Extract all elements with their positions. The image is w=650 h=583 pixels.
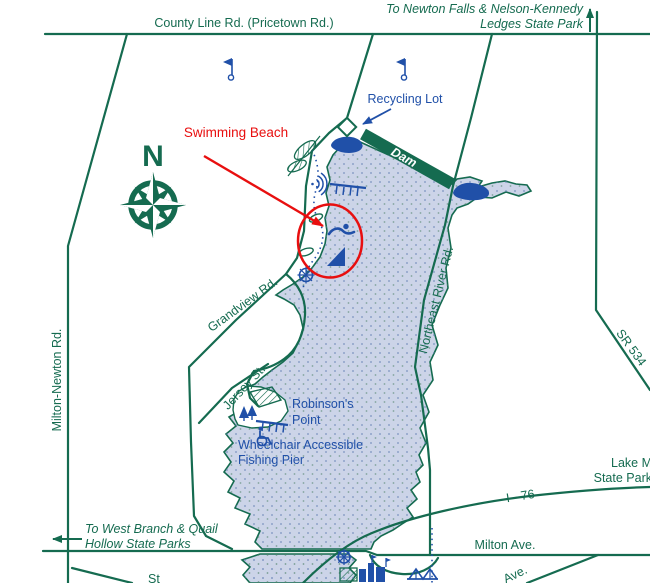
to-newton-falls-label-line1: To Newton Falls & Nelson-Kennedy bbox=[386, 2, 584, 16]
ave-partial-label: Ave. bbox=[501, 563, 529, 583]
i-76-label: I - 76 bbox=[505, 487, 535, 505]
swimming-beach-label: Swimming Beach bbox=[184, 125, 288, 140]
lake-main-stipple bbox=[224, 140, 531, 549]
recycling-lot-arrow bbox=[363, 109, 391, 124]
compass-rose-icon: N bbox=[116, 140, 190, 242]
ships-wheel-icon bbox=[336, 549, 352, 565]
compass-north-label: N bbox=[142, 140, 164, 173]
marina-buildings-icon bbox=[359, 555, 391, 582]
road-milton-newton bbox=[68, 34, 127, 583]
island-leaf-2 bbox=[286, 158, 308, 175]
lake-state-park-label-line2: State Park bbox=[594, 471, 650, 485]
st-partial-label: St bbox=[148, 572, 160, 583]
lake-milton-water bbox=[224, 140, 531, 583]
boat-launch-area-dam bbox=[331, 137, 362, 153]
amphitheater-icon bbox=[311, 173, 327, 194]
fishing-pier-label-line2: Fishing Pier bbox=[238, 453, 304, 467]
ships-wheel-icon bbox=[298, 267, 315, 284]
road-southwest-branch bbox=[72, 568, 132, 583]
map-canvas: N Swimming Beach County Line Rd. (Pricet… bbox=[0, 0, 650, 583]
robinsons-point-label-line1: Robinson's bbox=[292, 397, 353, 411]
robinsons-point-label-line2: Point bbox=[292, 413, 321, 427]
recycling-lot-label: Recycling Lot bbox=[367, 92, 443, 106]
to-west-branch-label-line1: To West Branch & Quail bbox=[85, 522, 219, 536]
grandview-rd-label: Grandview Rd. bbox=[205, 275, 280, 335]
lake-state-park-label-line1: Lake M bbox=[611, 456, 650, 470]
to-newton-falls-label-line2: Ledges State Park bbox=[480, 17, 584, 31]
lake-milton-map: N Swimming Beach County Line Rd. (Pricet… bbox=[0, 0, 650, 583]
milton-ave-label: Milton Ave. bbox=[475, 538, 536, 552]
road-northeast-river bbox=[415, 34, 492, 555]
flag-icon bbox=[396, 58, 407, 80]
county-line-rd-label: County Line Rd. (Pricetown Rd.) bbox=[154, 16, 333, 30]
recycling-lot-icon bbox=[338, 118, 356, 136]
flag-icon bbox=[223, 58, 234, 80]
to-west-branch-label-line2: Hollow State Parks bbox=[85, 537, 191, 551]
fishing-pier-label-line1: Wheelchair Accessible bbox=[238, 438, 363, 452]
road-milton-branch bbox=[527, 555, 598, 583]
milton-newton-rd-label: Milton-Newton Rd. bbox=[50, 329, 64, 432]
marina-shelter-area bbox=[340, 568, 357, 581]
